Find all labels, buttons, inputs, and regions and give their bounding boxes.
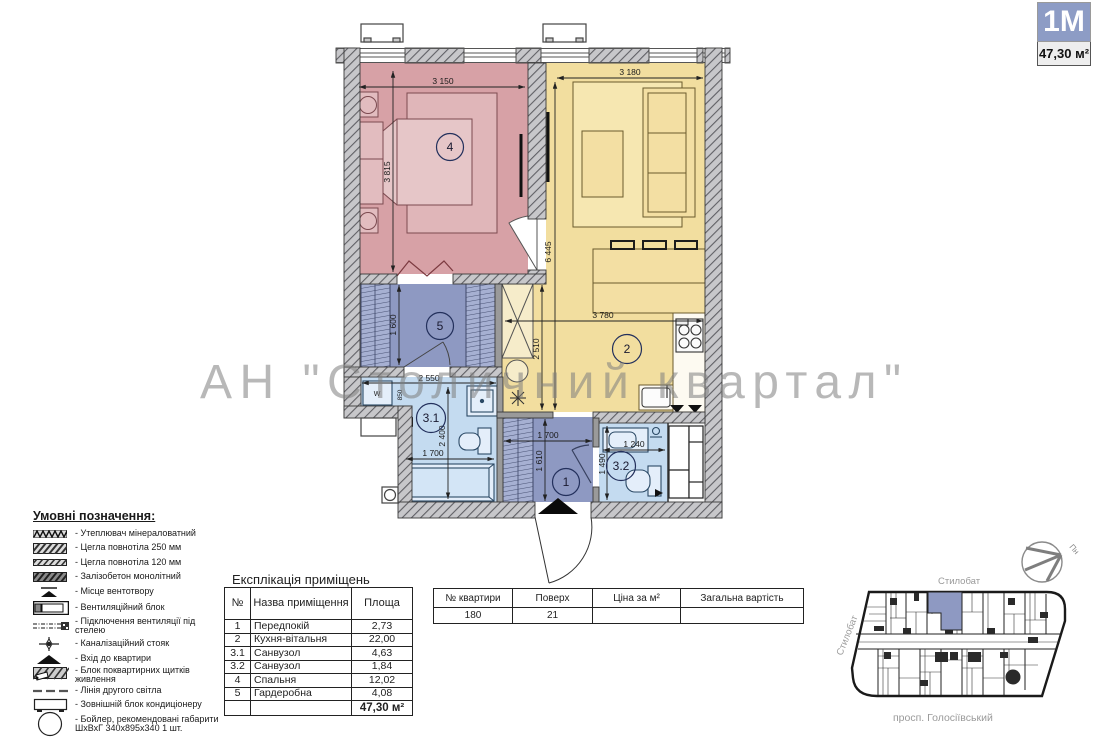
svg-text:1 700: 1 700: [422, 448, 444, 458]
svg-text:2: 2: [624, 342, 631, 356]
svg-text:3.1: 3.1: [423, 411, 440, 425]
svg-text:5: 5: [437, 319, 444, 333]
svg-text:1 700: 1 700: [537, 430, 559, 440]
svg-text:3.2: 3.2: [613, 459, 630, 473]
svg-text:1 240: 1 240: [623, 439, 645, 449]
svg-text:3 815: 3 815: [382, 161, 392, 183]
svg-text:1 610: 1 610: [534, 450, 544, 472]
svg-text:1: 1: [563, 475, 570, 489]
svg-text:1 490: 1 490: [597, 453, 607, 475]
svg-text:просп. Голосіївський: просп. Голосіївський: [893, 712, 993, 724]
svg-text:Пн: Пн: [1067, 543, 1080, 557]
svg-text:4: 4: [447, 140, 454, 154]
svg-text:Стилобат: Стилобат: [938, 576, 981, 587]
svg-text:6 445: 6 445: [543, 241, 553, 263]
svg-text:3 180: 3 180: [619, 67, 641, 77]
svg-text:3 150: 3 150: [432, 76, 454, 86]
svg-text:1 600: 1 600: [388, 314, 398, 336]
svg-text:3 780: 3 780: [592, 310, 614, 320]
